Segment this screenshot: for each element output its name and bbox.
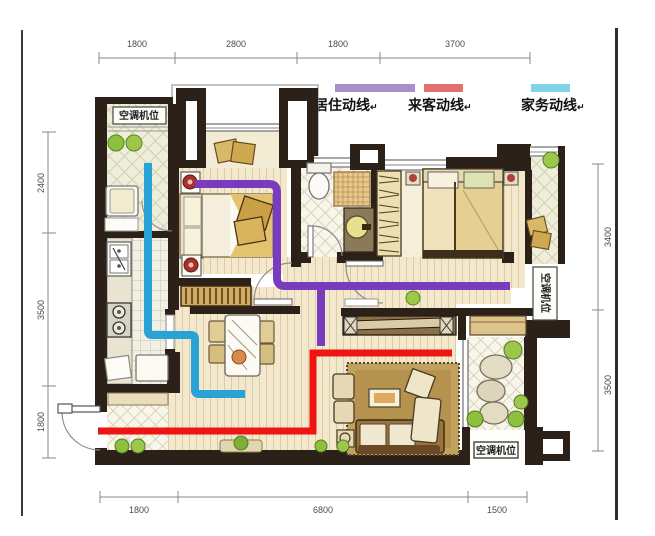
svg-text:家务动线↵: 家务动线↵ bbox=[521, 97, 585, 113]
svg-text:空调机位: 空调机位 bbox=[476, 444, 516, 457]
svg-text:1800: 1800 bbox=[328, 39, 348, 49]
svg-text:1800: 1800 bbox=[129, 505, 149, 515]
svg-text:1800: 1800 bbox=[36, 412, 46, 432]
svg-text:2800: 2800 bbox=[226, 39, 246, 49]
svg-text:3700: 3700 bbox=[445, 39, 465, 49]
svg-text:3500: 3500 bbox=[603, 375, 613, 395]
svg-text:空调机位: 空调机位 bbox=[539, 273, 552, 313]
svg-text:1500: 1500 bbox=[487, 505, 507, 515]
svg-text:6800: 6800 bbox=[313, 505, 333, 515]
svg-text:3400: 3400 bbox=[603, 227, 613, 247]
svg-text:1800: 1800 bbox=[127, 39, 147, 49]
svg-text:来客动线↵: 来客动线↵ bbox=[407, 97, 472, 113]
svg-text:居住动线↵: 居住动线↵ bbox=[314, 97, 378, 113]
svg-text:3500: 3500 bbox=[36, 300, 46, 320]
svg-text:空调机位: 空调机位 bbox=[119, 109, 159, 122]
svg-text:2400: 2400 bbox=[36, 173, 46, 193]
